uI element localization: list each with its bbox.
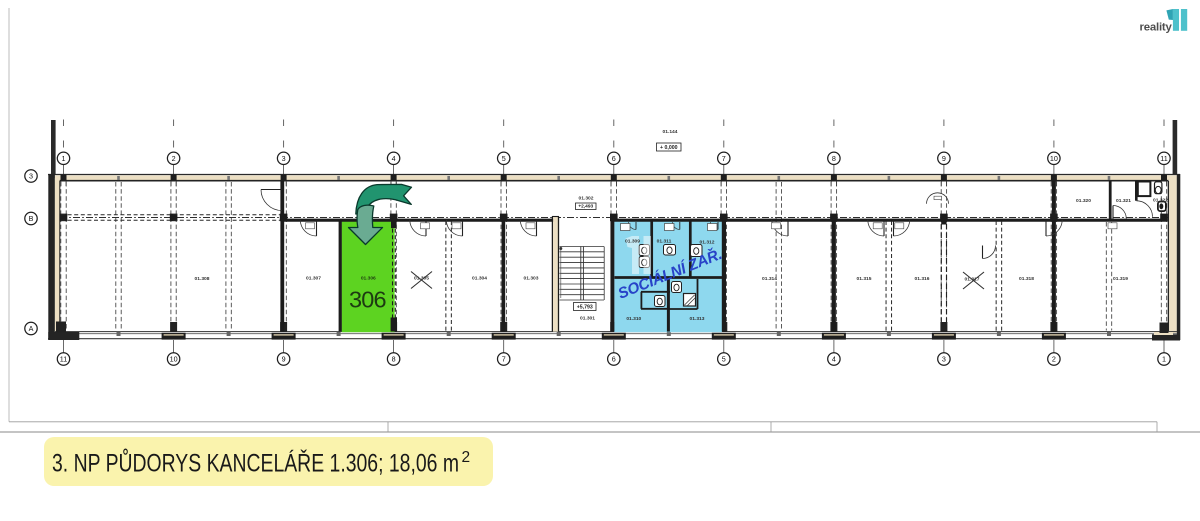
svg-text:3: 3 xyxy=(29,172,33,181)
svg-text:01.309: 01.309 xyxy=(625,239,640,245)
svg-text:01.304: 01.304 xyxy=(472,275,487,281)
svg-text:01.318: 01.318 xyxy=(1019,276,1034,282)
svg-text:01.311: 01.311 xyxy=(657,239,672,245)
svg-text:8: 8 xyxy=(392,355,396,364)
svg-text:3: 3 xyxy=(282,154,286,163)
svg-text:01.321: 01.321 xyxy=(1116,198,1131,204)
svg-text:3. NP PŮDORYS KANCELÁŘE 1.306;: 3. NP PŮDORYS KANCELÁŘE 1.306; 18,06 m xyxy=(52,447,459,478)
svg-text:01.302: 01.302 xyxy=(579,196,594,202)
svg-text:7: 7 xyxy=(722,154,726,163)
svg-text:B: B xyxy=(29,214,34,223)
svg-text:2: 2 xyxy=(1052,355,1056,364)
svg-text:11: 11 xyxy=(60,355,67,364)
svg-text:1: 1 xyxy=(1162,355,1166,364)
svg-text:01.316: 01.316 xyxy=(915,276,930,282)
svg-text:306: 306 xyxy=(349,287,387,313)
svg-text:01.320: 01.320 xyxy=(1076,198,1091,204)
svg-text:6: 6 xyxy=(612,154,616,163)
svg-text:01.144: 01.144 xyxy=(663,129,678,135)
svg-text:reality: reality xyxy=(1140,22,1173,34)
svg-text:5: 5 xyxy=(502,154,506,163)
svg-text:10: 10 xyxy=(170,355,178,364)
svg-text:01.322: 01.322 xyxy=(1153,197,1168,203)
svg-text:10: 10 xyxy=(1050,154,1058,163)
svg-text:5: 5 xyxy=(722,355,726,364)
svg-text:4: 4 xyxy=(832,355,836,364)
svg-text:01.319: 01.319 xyxy=(1113,276,1128,282)
svg-text:01.308: 01.308 xyxy=(195,276,210,282)
svg-text:7: 7 xyxy=(502,355,506,364)
svg-text:01.314: 01.314 xyxy=(762,276,777,282)
svg-text:01.310: 01.310 xyxy=(626,316,641,322)
svg-text:4: 4 xyxy=(392,154,396,163)
svg-text:+5,793: +5,793 xyxy=(577,305,593,311)
svg-text:2: 2 xyxy=(462,449,471,466)
svg-text:2: 2 xyxy=(172,154,176,163)
svg-text:11: 11 xyxy=(1160,154,1167,163)
svg-text:+ 0,000: + 0,000 xyxy=(660,145,678,151)
svg-text:8: 8 xyxy=(832,154,836,163)
svg-text:9: 9 xyxy=(282,355,286,364)
svg-text:01.313: 01.313 xyxy=(690,316,705,322)
svg-text:9: 9 xyxy=(942,154,946,163)
svg-text:01.312: 01.312 xyxy=(700,239,715,245)
svg-text:01.315: 01.315 xyxy=(857,276,872,282)
svg-text:+2,493: +2,493 xyxy=(578,204,593,210)
svg-text:01.306: 01.306 xyxy=(361,276,376,282)
svg-text:3: 3 xyxy=(942,355,946,364)
svg-text:6: 6 xyxy=(612,355,616,364)
svg-text:01.307: 01.307 xyxy=(306,275,321,281)
svg-text:01.303: 01.303 xyxy=(524,275,539,281)
svg-text:01.301: 01.301 xyxy=(580,315,595,321)
svg-text:A: A xyxy=(29,324,34,333)
svg-text:1: 1 xyxy=(62,154,66,163)
